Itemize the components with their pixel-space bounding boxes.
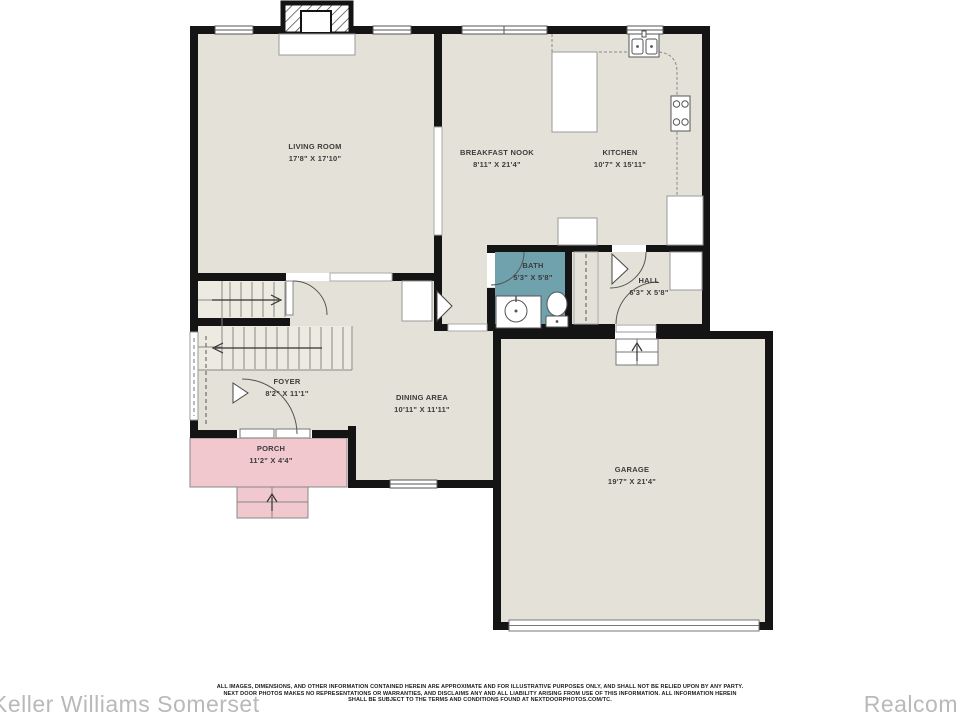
room-name: BATH bbox=[513, 261, 552, 270]
living-room-label: LIVING ROOM 17'8" X 17'10" bbox=[288, 142, 341, 163]
breakfast-nook-label: BREAKFAST NOOK 8'11" X 21'4" bbox=[460, 148, 534, 169]
hall-label: HALL 6'3" X 5'8" bbox=[629, 276, 668, 297]
room-dims: 6'3" X 5'8" bbox=[629, 288, 668, 297]
garage-label: GARAGE 19'7" X 21'4" bbox=[608, 465, 656, 486]
room-name: FOYER bbox=[265, 377, 308, 386]
room-name: GARAGE bbox=[608, 465, 656, 474]
refrigerator bbox=[667, 196, 703, 245]
disclaimer-line: ALL IMAGES, DIMENSIONS, AND OTHER INFORM… bbox=[215, 684, 745, 691]
room-dims: 17'8" X 17'10" bbox=[288, 154, 341, 163]
bath-label: BATH 5'3" X 5'8" bbox=[513, 261, 552, 282]
room-name: DINING AREA bbox=[394, 393, 450, 402]
stove-icon bbox=[671, 96, 690, 131]
bath-fixtures bbox=[496, 292, 568, 328]
room-name: KITCHEN bbox=[594, 148, 646, 157]
kitchen-label: KITCHEN 10'7" X 15'11" bbox=[594, 148, 646, 169]
front-door-leaf bbox=[276, 429, 310, 438]
room-dims: 5'3" X 5'8" bbox=[513, 273, 552, 282]
disclaimer-line: NEXT DOOR PHOTOS MAKES NO REPRESENTATION… bbox=[215, 691, 745, 698]
dining-area-label: DINING AREA 10'11" X 11'11" bbox=[394, 393, 450, 414]
mls-watermark: Realcom bbox=[864, 691, 958, 718]
room-dims: 11'2" X 4'4" bbox=[249, 456, 292, 465]
room-dims: 10'11" X 11'11" bbox=[394, 405, 450, 414]
room-dims: 8'11" X 21'4" bbox=[460, 160, 534, 169]
disclaimer: ALL IMAGES, DIMENSIONS, AND OTHER INFORM… bbox=[215, 684, 745, 704]
front-door-leaf bbox=[240, 429, 274, 438]
porch-label: PORCH 11'2" X 4'4" bbox=[249, 444, 292, 465]
hearth bbox=[279, 34, 355, 55]
counter-block bbox=[558, 218, 597, 245]
kitchen-sink-icon bbox=[629, 31, 659, 57]
hall-closet bbox=[670, 252, 702, 290]
room-name: BREAKFAST NOOK bbox=[460, 148, 534, 157]
floor-plan-drawing bbox=[0, 0, 960, 720]
foyer-label: FOYER 8'2" X 11'1" bbox=[265, 377, 308, 398]
firebox bbox=[301, 11, 331, 33]
room-dims: 8'2" X 11'1" bbox=[265, 389, 308, 398]
room-name: LIVING ROOM bbox=[288, 142, 341, 151]
fireplace bbox=[279, 3, 355, 55]
counter-block bbox=[552, 52, 597, 132]
disclaimer-line: SHALL BE SUBJECT TO THE TERMS AND CONDIT… bbox=[215, 697, 745, 704]
room-dims: 10'7" X 15'11" bbox=[594, 160, 646, 169]
floor-plan-page: LIVING ROOM 17'8" X 17'10" BREAKFAST NOO… bbox=[0, 0, 960, 720]
toilet-icon bbox=[546, 292, 568, 327]
room-name: HALL bbox=[629, 276, 668, 285]
room-name: PORCH bbox=[249, 444, 292, 453]
room-dims: 19'7" X 21'4" bbox=[608, 477, 656, 486]
